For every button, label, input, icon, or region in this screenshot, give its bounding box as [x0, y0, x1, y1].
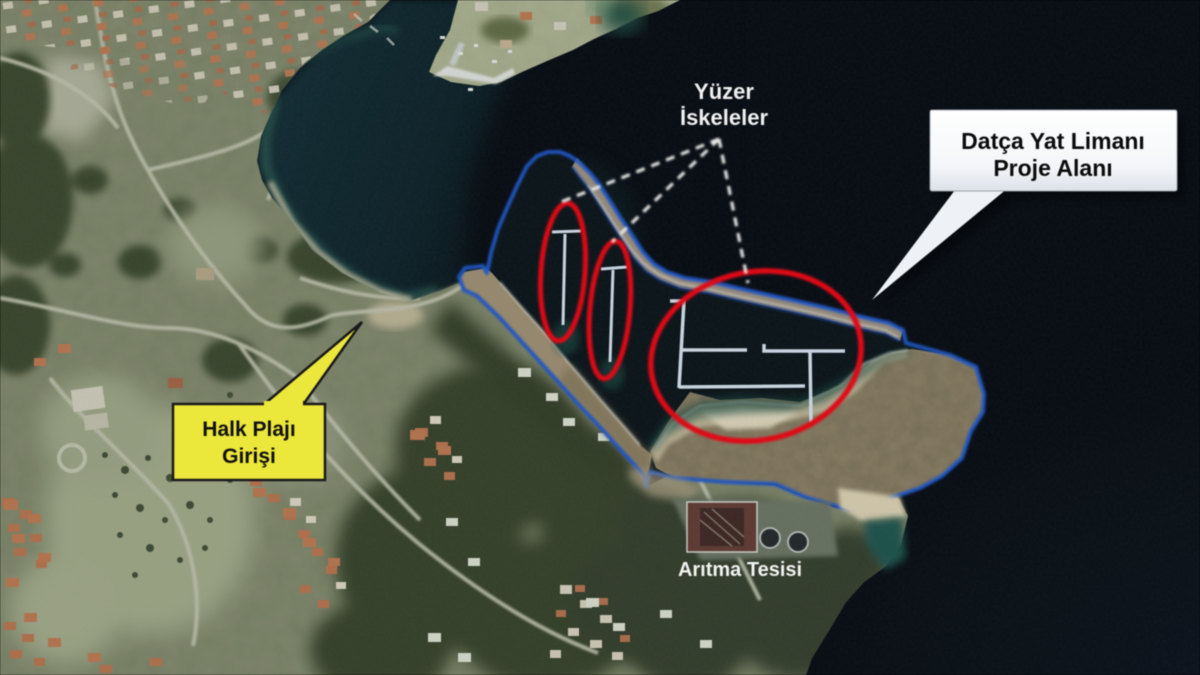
svg-text:Girişi: Girişi	[222, 445, 276, 468]
svg-text:Arıtma Tesisi: Arıtma Tesisi	[678, 559, 802, 581]
svg-text:Halk Plajı: Halk Plajı	[202, 418, 295, 441]
svg-text:Datça Yat Limanı: Datça Yat Limanı	[961, 128, 1145, 154]
svg-text:İskeleler: İskeleler	[680, 105, 769, 130]
svg-text:Yüzer: Yüzer	[694, 79, 754, 104]
svg-text:Proje Alanı: Proje Alanı	[993, 155, 1112, 181]
